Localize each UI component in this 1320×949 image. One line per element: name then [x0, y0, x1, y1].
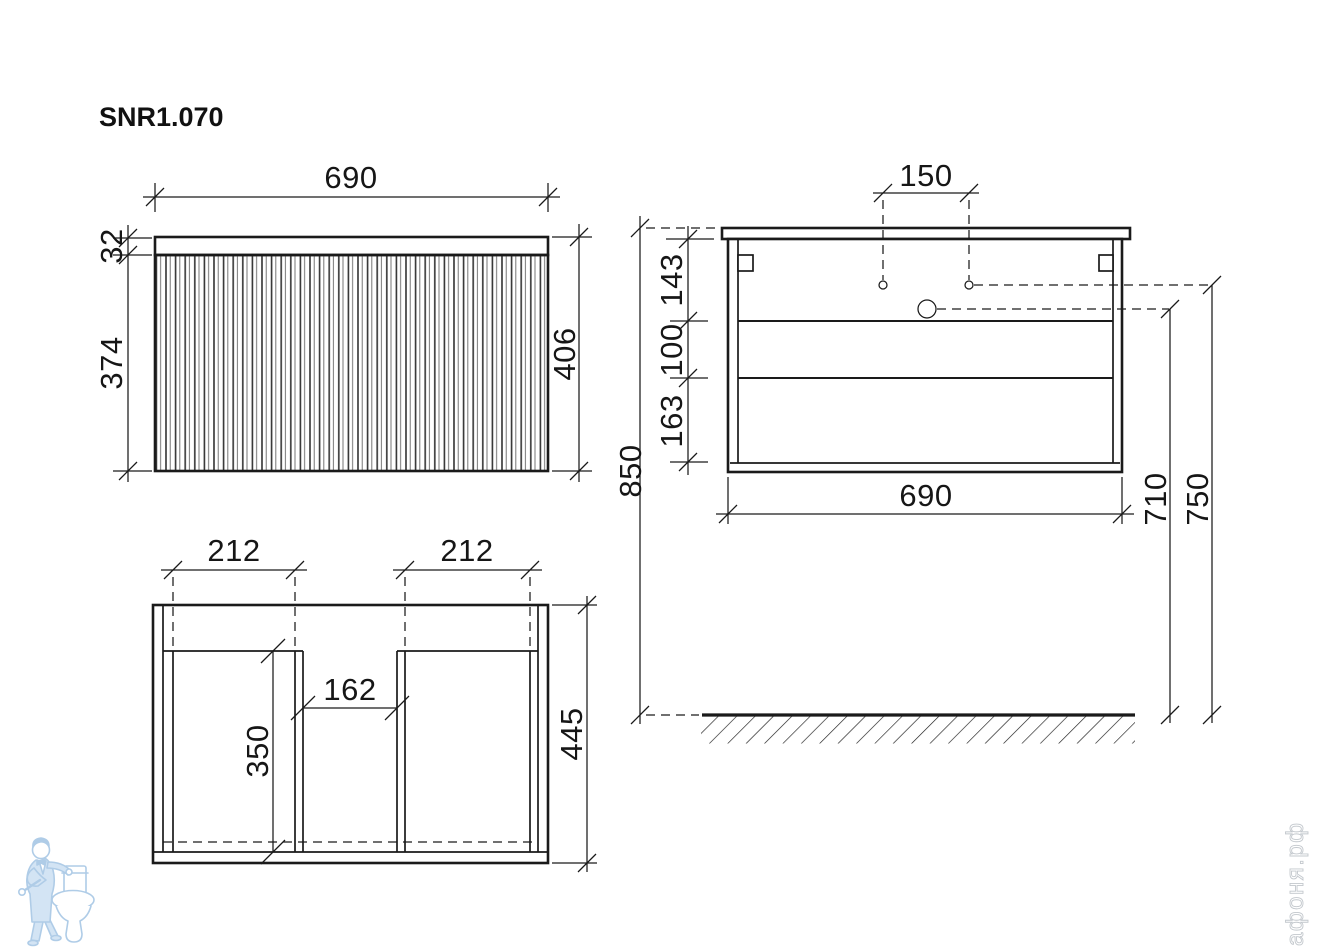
- floor-hatch: [701, 715, 1135, 744]
- dim-front-total-height-label: 406: [547, 327, 582, 380]
- dim-facade-height-label: 374: [94, 336, 129, 389]
- dim-drawer-to-bottom-label: 163: [654, 394, 689, 447]
- dim-front-width-label: 690: [324, 160, 377, 195]
- plan-outline: [153, 605, 548, 863]
- dim-front-width: 690: [143, 160, 560, 212]
- brand-watermark-text: афоня.рф: [1282, 822, 1309, 946]
- dim-plan-right-opening-label: 212: [440, 533, 493, 568]
- dim-plan-left-opening-label: 212: [207, 533, 260, 568]
- dim-drain-height: 710: [1138, 300, 1179, 724]
- drawing-page: SNR1.070 690 32 374 406: [0, 0, 1320, 949]
- page-title: SNR1.070: [99, 102, 224, 132]
- dim-plan-opening-depth-label: 350: [240, 724, 275, 777]
- dim-drain-height-label: 710: [1138, 472, 1173, 525]
- dim-top-to-drawer-label: 143: [654, 253, 689, 306]
- side-view: 150 143 100 163 850: [613, 158, 1221, 744]
- countertop-side: [722, 228, 1130, 239]
- dim-side-width: 690: [716, 477, 1134, 524]
- dim-supply-height-label: 750: [1180, 472, 1215, 525]
- dim-side-vertical-chain: 143 100 163: [654, 226, 714, 475]
- wall-bracket-left: [738, 255, 753, 271]
- dim-plan-total-depth: 445: [552, 596, 597, 872]
- plan-view: 212 212 162 350 445: [153, 533, 597, 872]
- ribbed-facade: [155, 255, 548, 471]
- dim-mounting-height-label: 850: [613, 444, 648, 497]
- dim-supply-height: 750: [1180, 276, 1221, 724]
- dim-front-total-height: 406: [547, 224, 592, 482]
- faucet-hole-icon: [965, 281, 973, 289]
- dim-plan-total-depth-label: 445: [554, 707, 589, 760]
- countertop-front: [155, 237, 548, 255]
- dim-countertop-thickness-label: 32: [94, 228, 129, 263]
- dim-drawer-to-drawer-label: 100: [654, 323, 689, 376]
- dim-faucet-spacing-label: 150: [899, 158, 952, 193]
- faucet-hole-icon: [879, 281, 887, 289]
- front-view: 690 32 374 406: [94, 160, 592, 482]
- side-outline: [728, 239, 1122, 472]
- dim-side-width-label: 690: [899, 478, 952, 513]
- drain-hole-icon: [918, 300, 936, 318]
- plumber-mascot-watermark: [19, 838, 94, 946]
- dim-front-heights-left: 32 374: [94, 225, 152, 482]
- wall-bracket-right: [1099, 255, 1113, 271]
- dim-plan-center-gap-label: 162: [323, 672, 376, 707]
